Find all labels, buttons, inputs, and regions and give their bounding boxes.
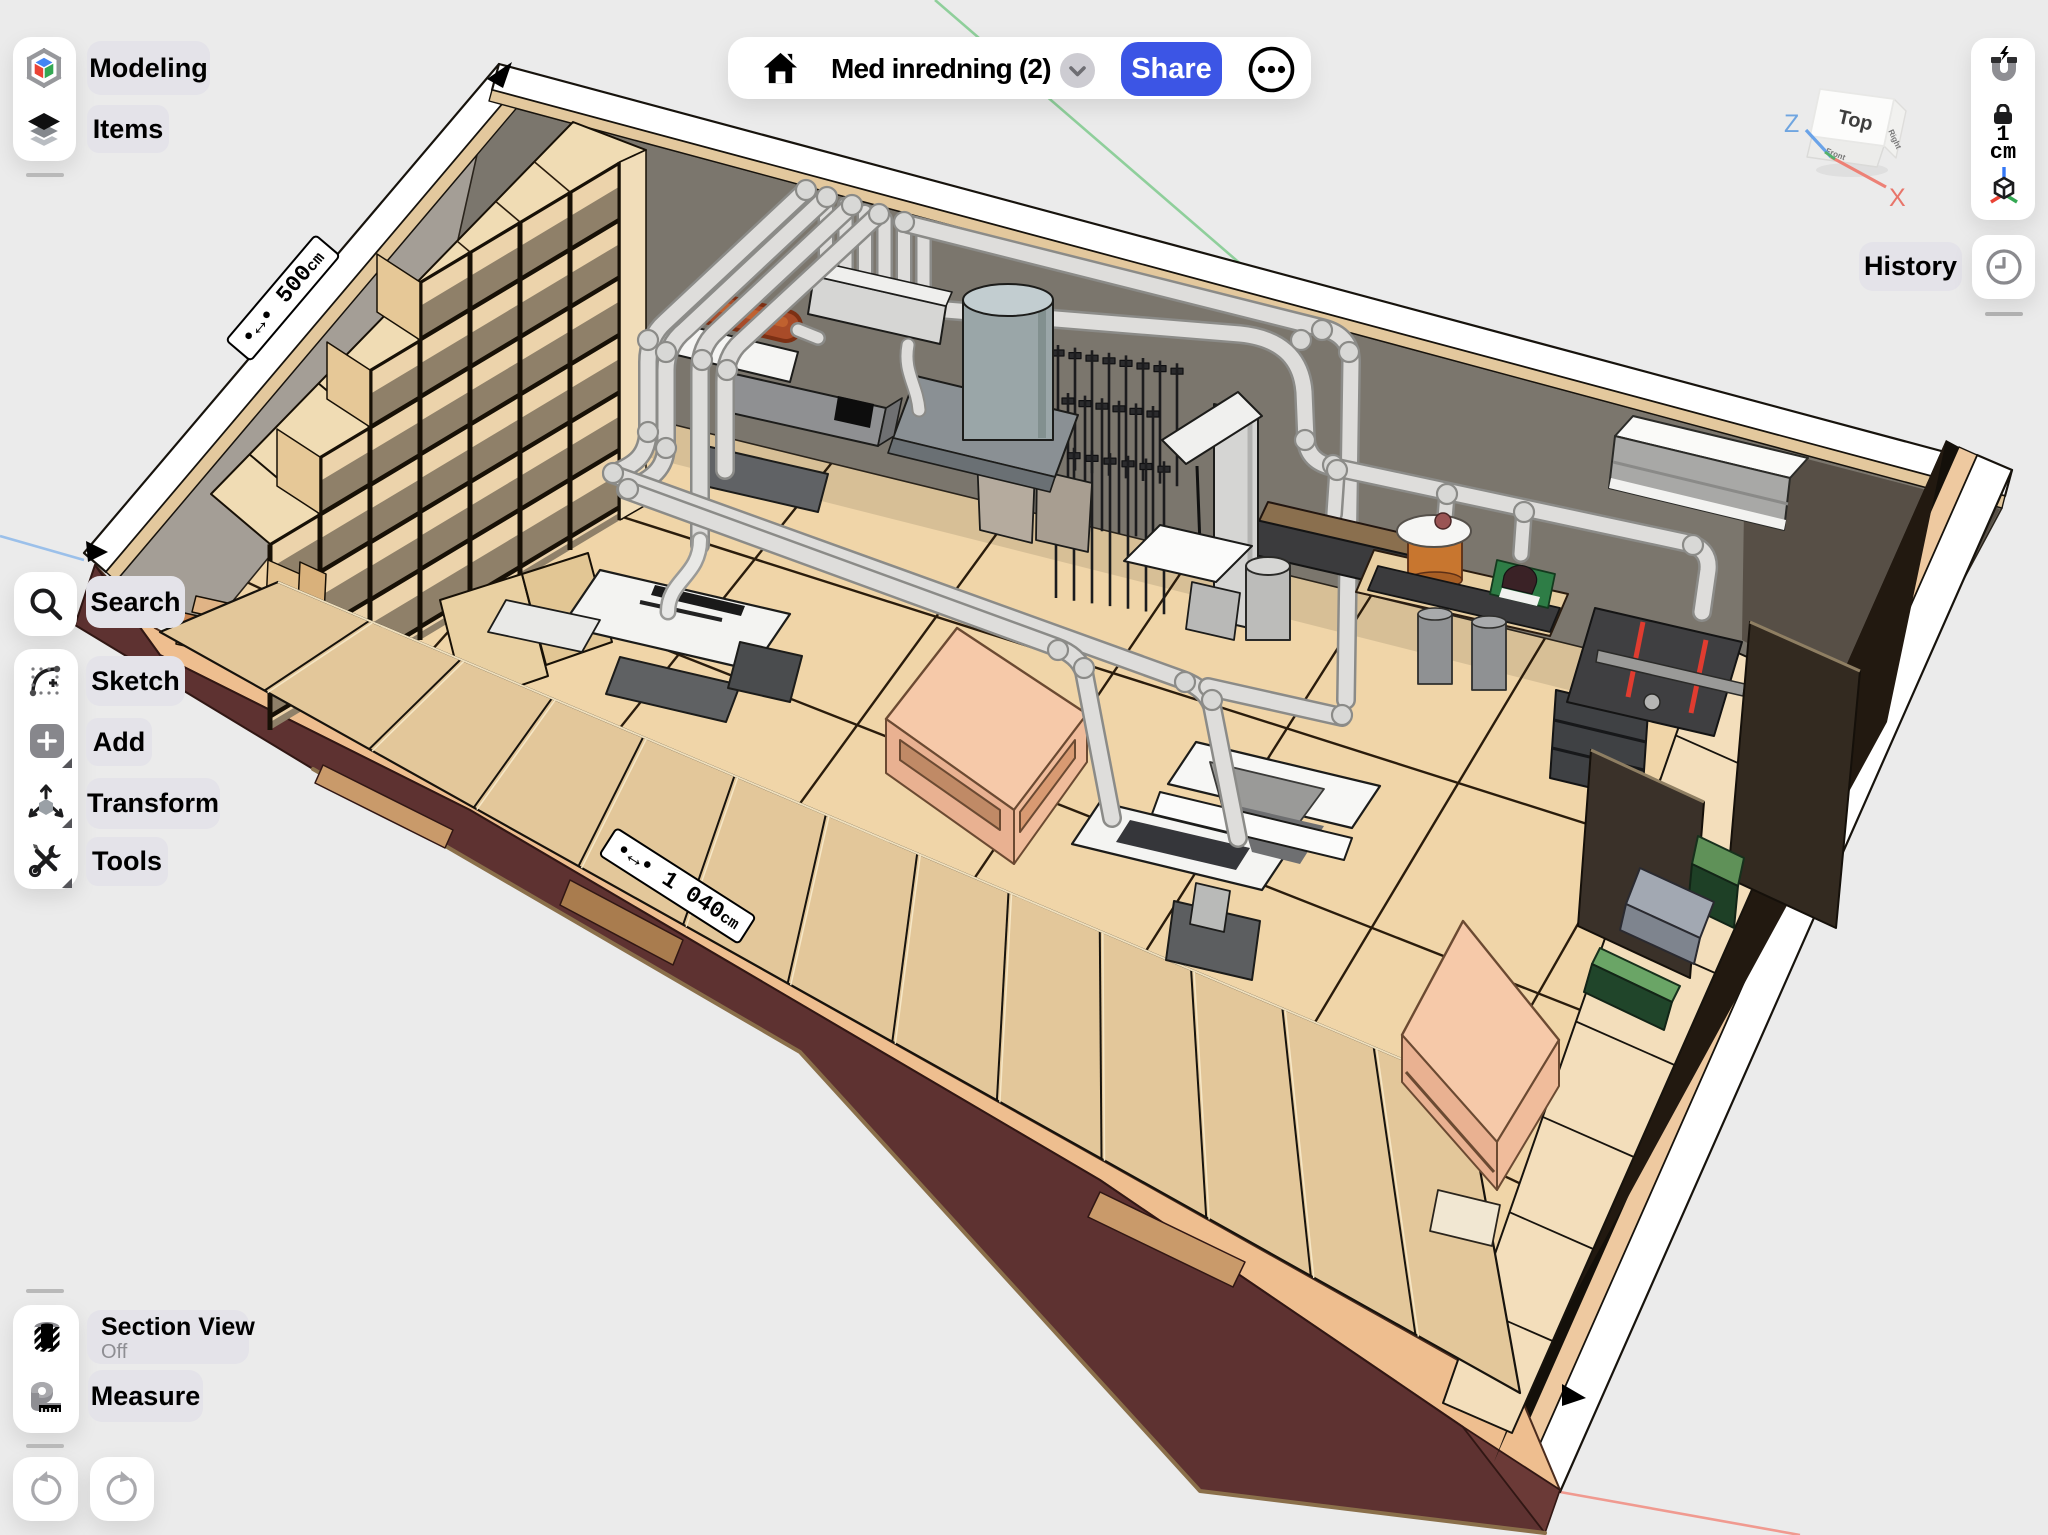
- svg-text:X: X: [1889, 184, 1906, 212]
- svg-text:Z: Z: [1784, 110, 1799, 138]
